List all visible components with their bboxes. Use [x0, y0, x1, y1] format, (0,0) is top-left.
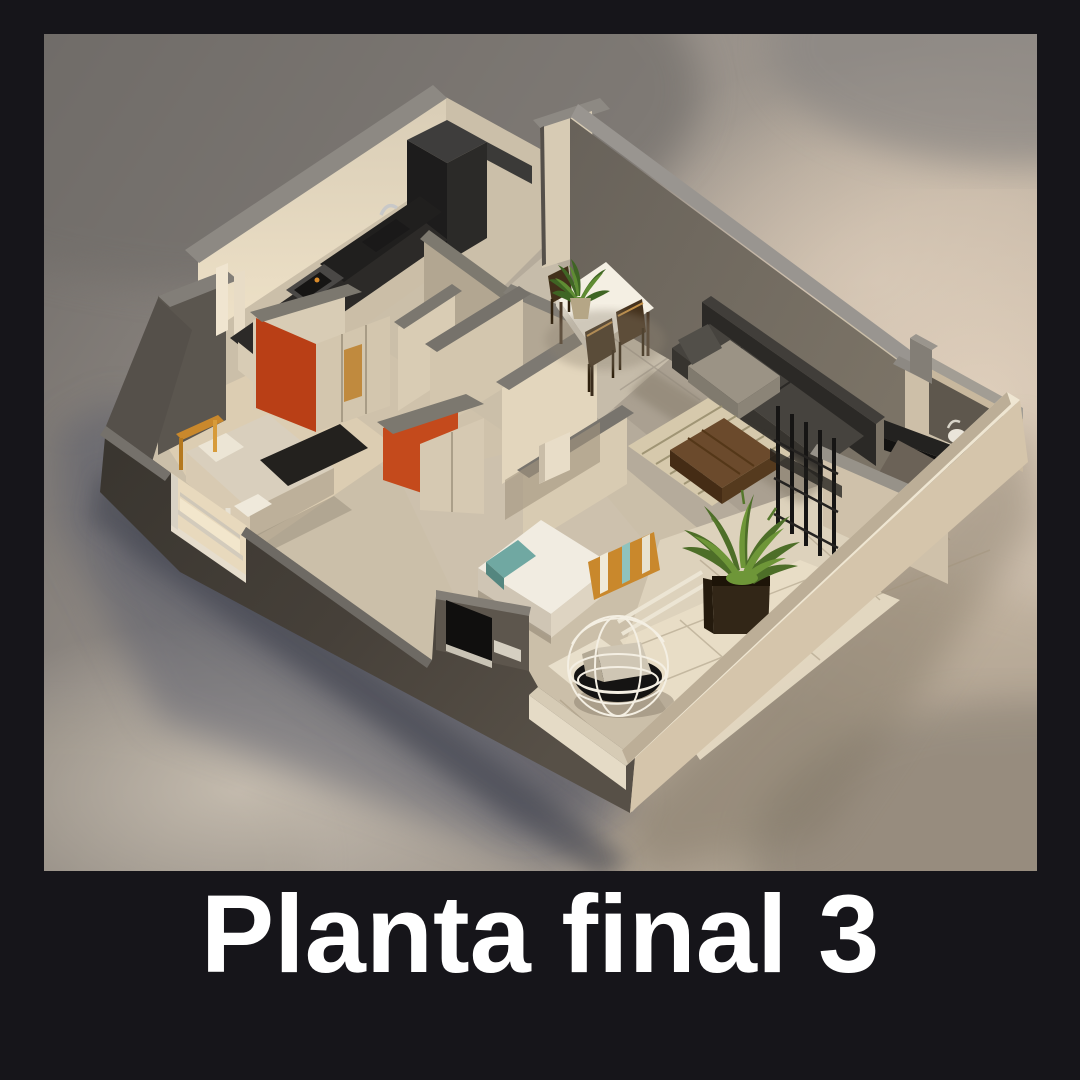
svg-text:Planta final 3: Planta final 3	[201, 873, 880, 996]
